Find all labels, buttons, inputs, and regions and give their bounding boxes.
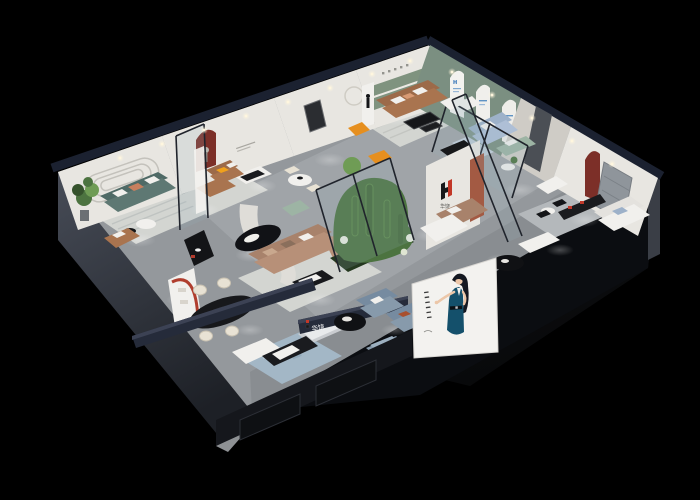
black-round-table bbox=[492, 255, 524, 271]
round-dining-table-small bbox=[288, 174, 312, 186]
white-curtain bbox=[194, 146, 206, 214]
showroom-render-canvas: H bbox=[0, 0, 700, 500]
statue bbox=[367, 98, 370, 108]
showroom-isometric-render: H bbox=[0, 0, 700, 500]
round-mirror bbox=[345, 87, 363, 105]
round-coffee-table bbox=[136, 219, 156, 229]
black-pedestal-table bbox=[334, 313, 366, 331]
arch-panel-logo: H bbox=[453, 80, 457, 86]
